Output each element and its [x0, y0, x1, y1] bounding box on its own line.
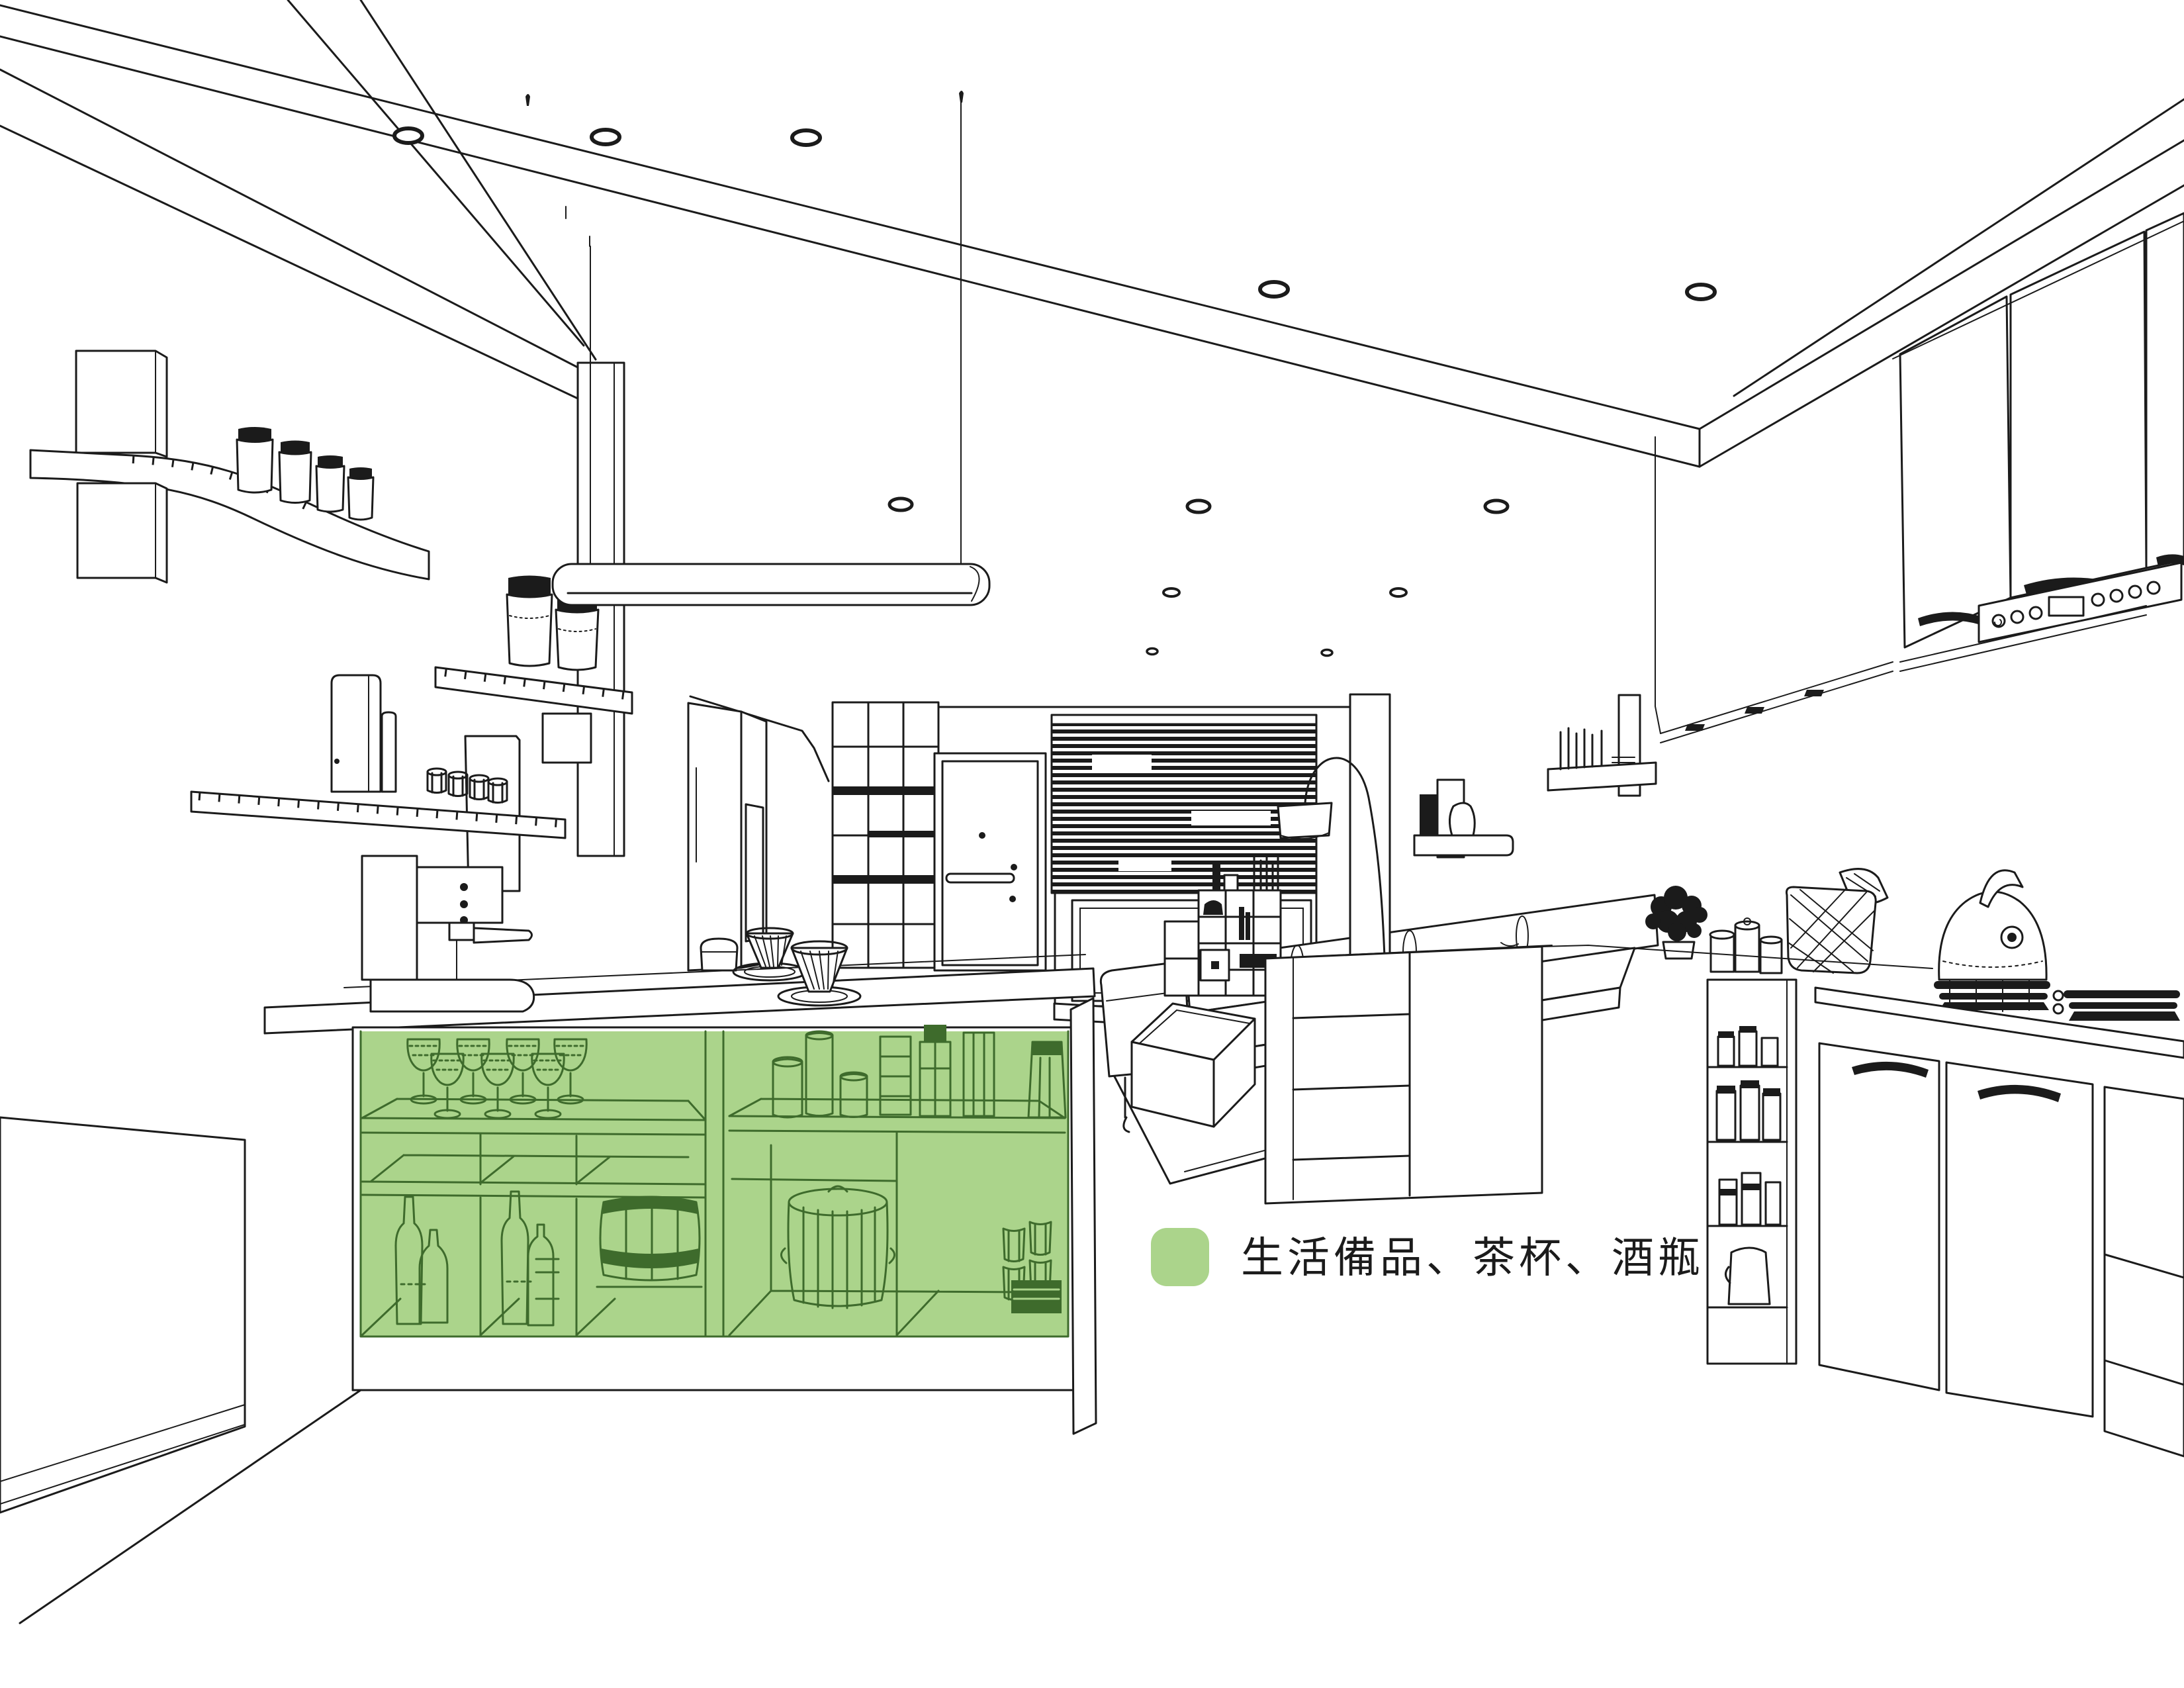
rear-column	[1350, 694, 1390, 957]
tall-canister	[332, 675, 381, 792]
wall-shelf-top-left	[30, 351, 429, 583]
legend-label: 生活備品、茶杯、酒瓶	[1241, 1234, 1704, 1282]
under-cabinet-rail	[1655, 437, 1893, 743]
glass-partition	[833, 702, 938, 968]
door-handle	[946, 874, 1014, 882]
legend: 生活備品、茶杯、酒瓶	[1151, 1228, 1704, 1286]
gas-hob	[2054, 990, 2180, 1021]
open-pantry-shelf	[1707, 980, 1796, 1364]
decor-wall-shelf	[1414, 780, 1513, 857]
trash-bin	[701, 939, 737, 970]
book-wall-shelf	[1548, 695, 1656, 796]
kitchen-peninsula	[1265, 945, 1552, 1203]
left-side-cabinet	[0, 1117, 245, 1513]
interior-rendering: 生活備品、茶杯、酒瓶	[0, 0, 2184, 1688]
highlighted-shelves	[353, 1025, 1077, 1390]
kitchen-canisters	[1710, 918, 1782, 973]
entry-door	[934, 753, 1046, 970]
window-blinds	[1052, 715, 1316, 893]
base-cabinets	[1819, 1043, 2184, 1456]
highlight-region	[361, 1031, 1068, 1336]
stove-kettle	[1939, 870, 2046, 980]
ceiling-fascia	[0, 5, 1700, 467]
legend-swatch	[1151, 1228, 1209, 1286]
bread-basket	[1786, 869, 1888, 973]
